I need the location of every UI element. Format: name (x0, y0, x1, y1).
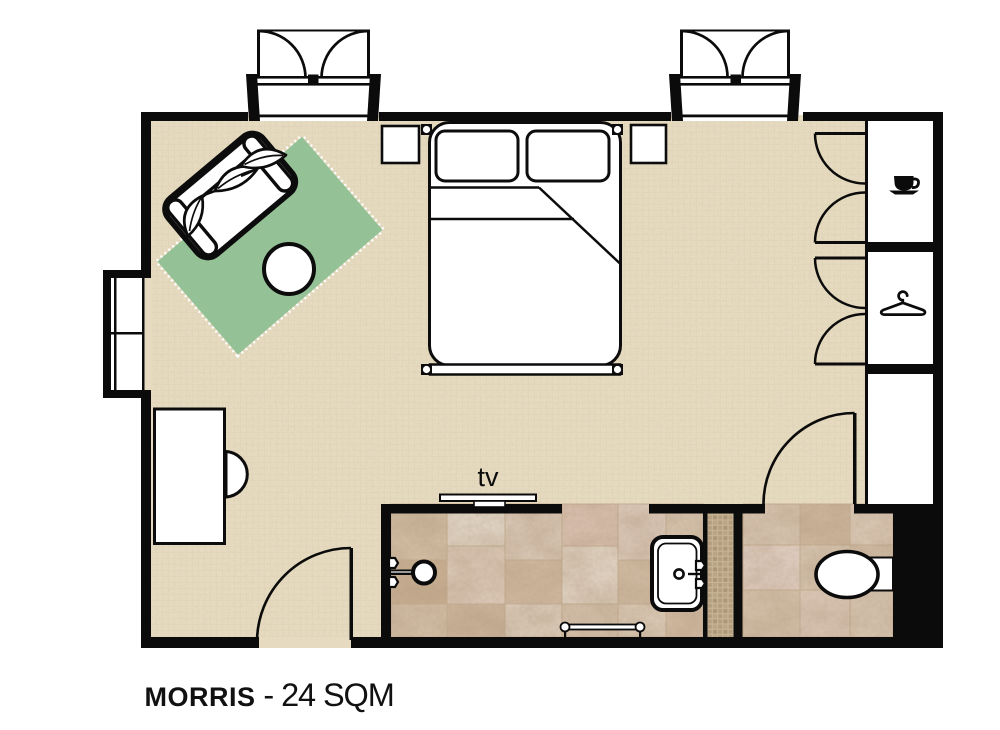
svg-text:tv: tv (477, 462, 499, 492)
svg-text:MORRIS - 24 SQM: MORRIS - 24 SQM (145, 677, 394, 713)
